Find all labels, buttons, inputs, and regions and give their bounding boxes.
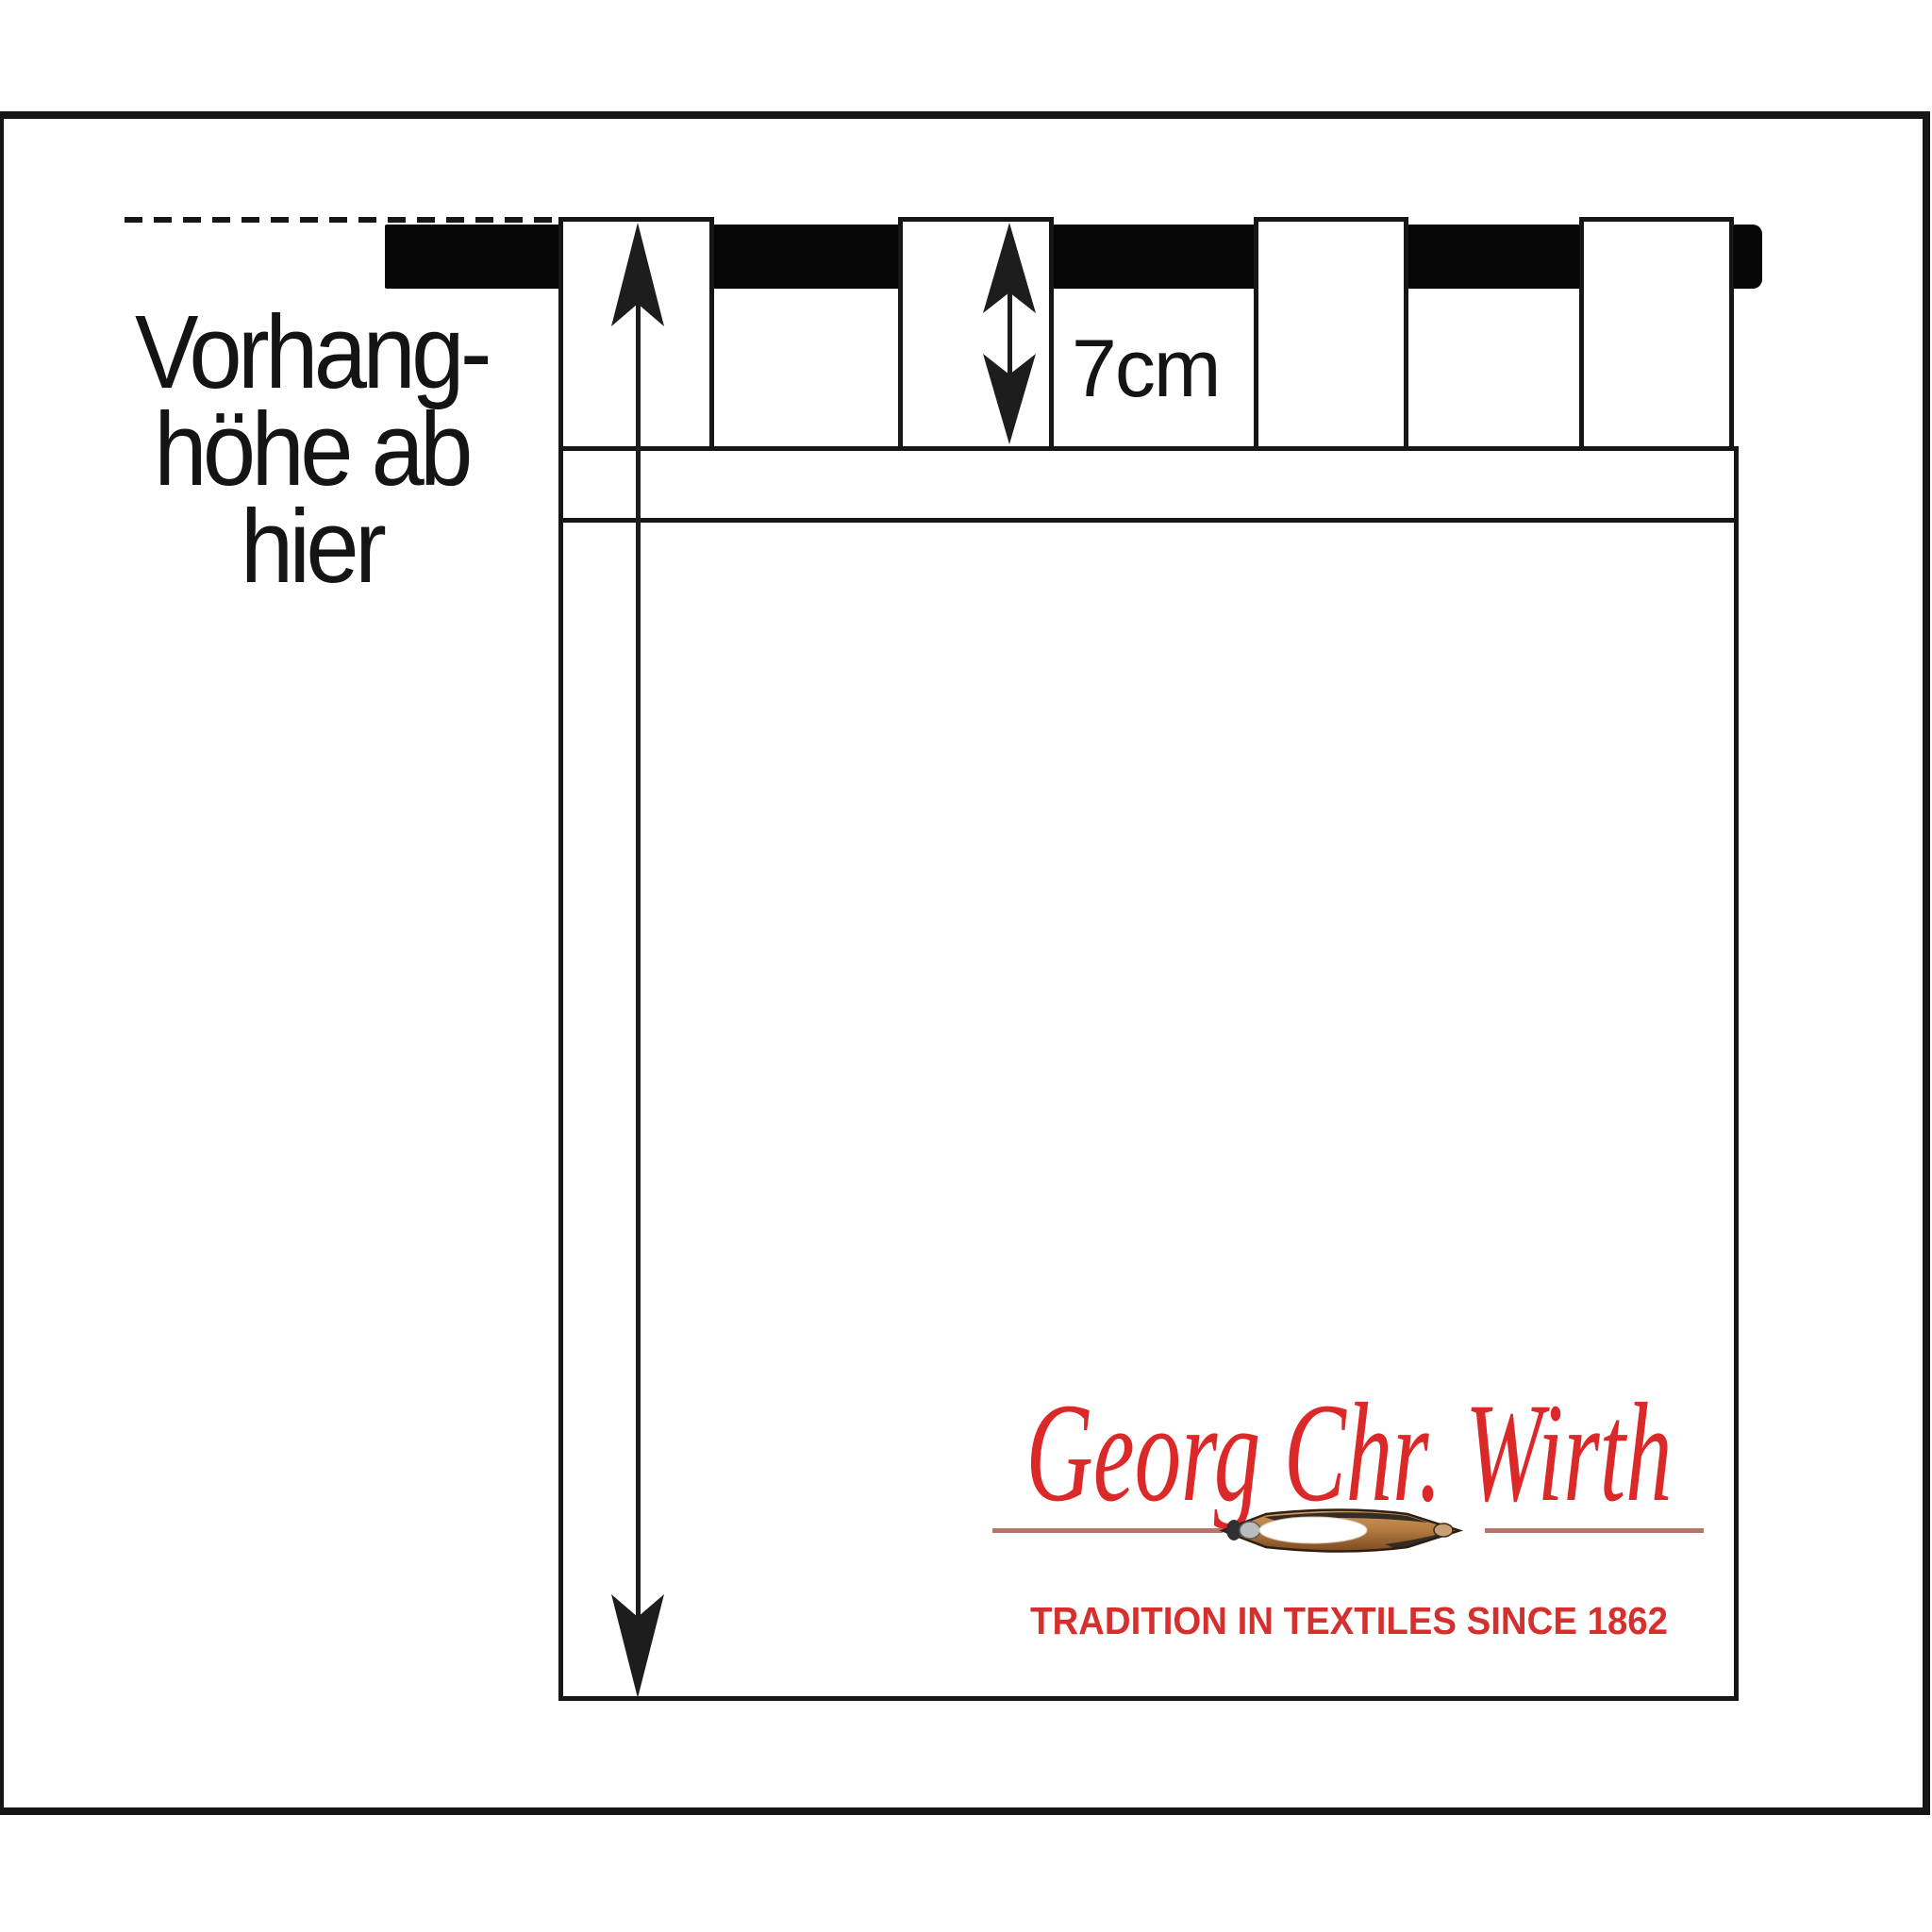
- curtain-tab-3: [1254, 217, 1408, 446]
- annotation-line: hier: [98, 498, 525, 595]
- annotation-line: Vorhang-: [98, 304, 525, 401]
- tab-height-label: 7cm: [1072, 328, 1219, 409]
- brand-title: Georg Chr. Wirth: [1026, 1374, 1673, 1531]
- hang-height-annotation: Vorhang- höhe ab hier: [98, 304, 525, 595]
- brand-tagline: TRADITION IN TEXTILES SINCE 1862: [1030, 1599, 1668, 1642]
- brand-logo: Georg Chr. Wirth TRADITION IN TEXTILES S…: [981, 1358, 1717, 1651]
- curtain-measurement-diagram: Vorhang- höhe ab hier 7cm Georg Chr. Wir…: [0, 0, 1932, 1932]
- hang-height-reference-dashed-line: [125, 217, 558, 223]
- logo-divider-line-right: [1485, 1528, 1704, 1533]
- curtain-tab-4: [1579, 217, 1734, 446]
- annotation-line: höhe ab: [98, 401, 525, 498]
- curtain-tab-2: [898, 217, 1054, 446]
- curtain-tab-1: [558, 217, 714, 446]
- curtain-hem-line: [563, 518, 1734, 523]
- logo-divider-line-left: [992, 1528, 1223, 1533]
